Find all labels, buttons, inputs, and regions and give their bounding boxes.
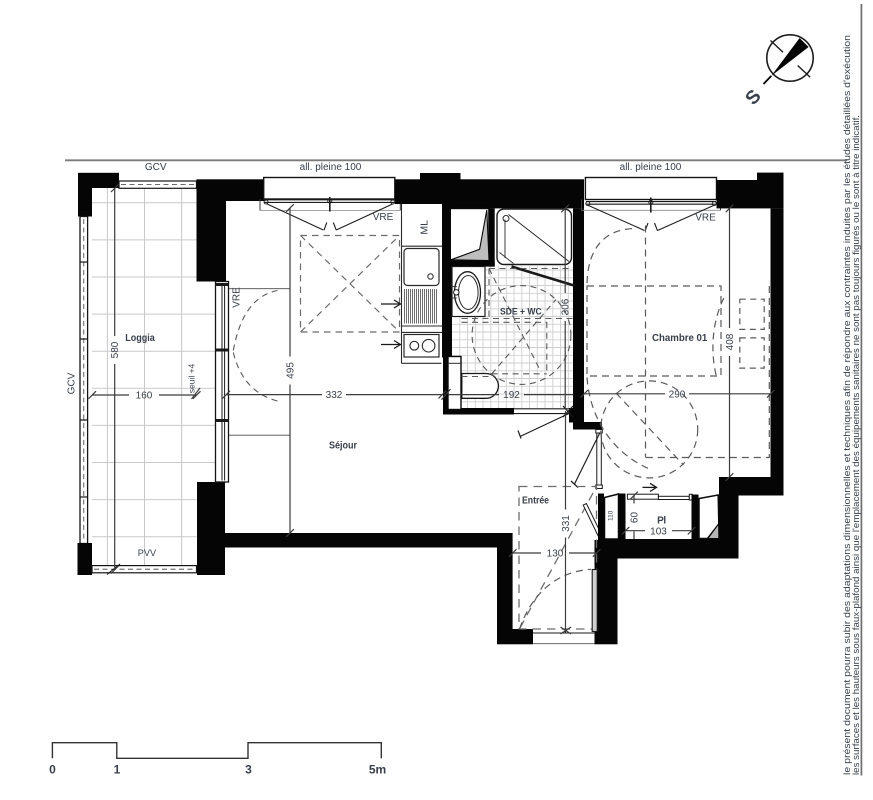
svg-text:103: 103 — [650, 526, 667, 537]
svg-text:60: 60 — [629, 512, 640, 524]
svg-text:192: 192 — [503, 390, 520, 401]
svg-text:1: 1 — [114, 763, 121, 777]
svg-text:331: 331 — [561, 515, 572, 532]
svg-text:GCV: GCV — [67, 372, 78, 394]
svg-text:Chambre 01: Chambre 01 — [652, 333, 708, 344]
svg-text:all. pleine 100: all. pleine 100 — [620, 162, 682, 173]
svg-text:VRE: VRE — [695, 213, 716, 224]
svg-text:ML: ML — [419, 220, 431, 235]
svg-text:all. pleine 100: all. pleine 100 — [300, 162, 362, 173]
svg-text:110: 110 — [608, 510, 615, 521]
svg-text:5m: 5m — [369, 763, 386, 777]
svg-text:3: 3 — [245, 763, 252, 777]
svg-text:PVV: PVV — [138, 548, 157, 558]
svg-text:332: 332 — [326, 390, 343, 401]
svg-text:GCV: GCV — [145, 162, 167, 173]
svg-text:VRE: VRE — [232, 287, 243, 308]
svg-text:Pl: Pl — [657, 516, 666, 527]
svg-text:408: 408 — [725, 333, 736, 350]
svg-text:les surfaces et les hauteurs s: les surfaces et les hauteurs sous faux-p… — [850, 115, 861, 775]
svg-text:495: 495 — [285, 362, 296, 379]
svg-text:290: 290 — [669, 389, 686, 400]
svg-text:306: 306 — [561, 298, 572, 315]
svg-text:Loggia: Loggia — [125, 333, 155, 344]
svg-text:160: 160 — [136, 391, 153, 402]
svg-text:seuil +4: seuil +4 — [187, 363, 197, 393]
svg-text:Entrée: Entrée — [522, 496, 549, 507]
svg-text:Séjour: Séjour — [329, 441, 357, 452]
svg-text:VRE: VRE — [373, 212, 394, 223]
svg-text:0: 0 — [49, 763, 56, 777]
svg-text:130: 130 — [547, 549, 564, 560]
svg-text:580: 580 — [110, 341, 121, 358]
svg-text:SDE + WC: SDE + WC — [500, 307, 542, 317]
